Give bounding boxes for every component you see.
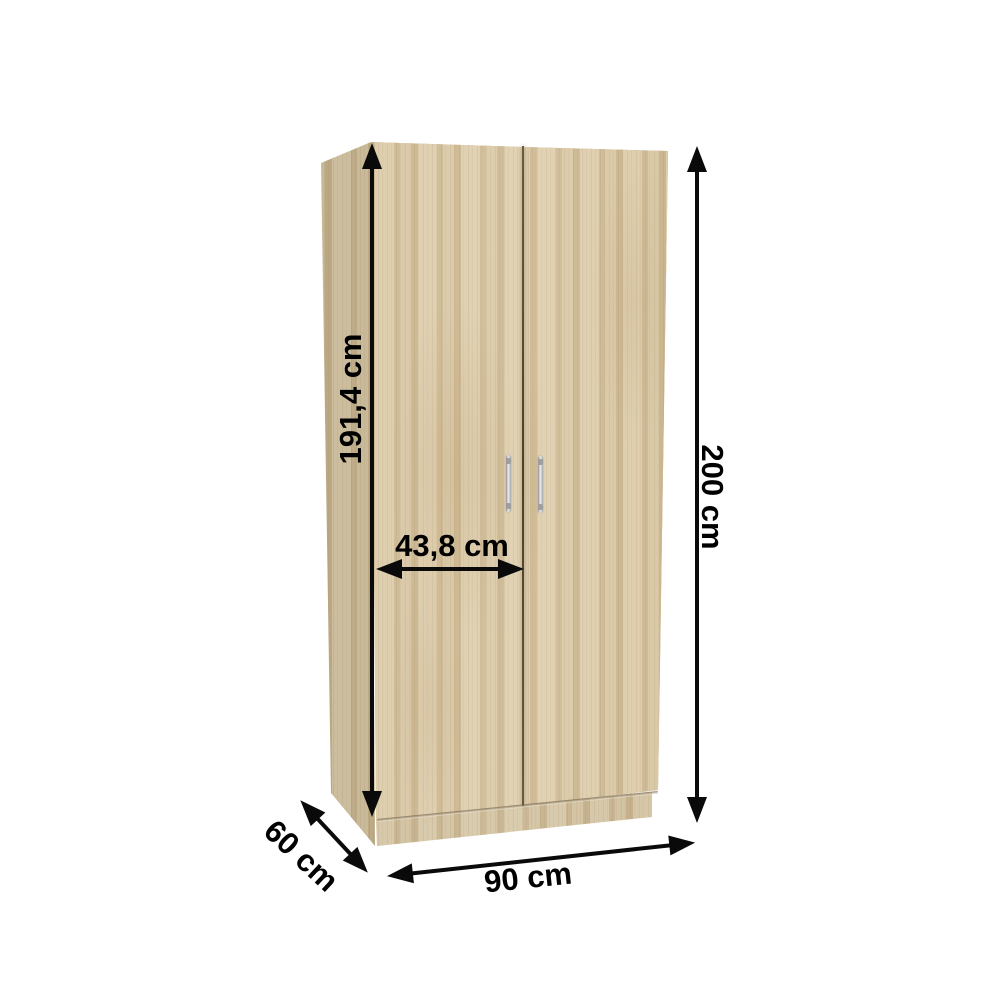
arrow-head-icon [362,143,382,169]
arrow-head-icon [687,797,707,823]
arrow-head-icon [668,833,696,856]
door-gap-line [522,146,525,806]
door-width-label: 43,8 cm [395,528,509,564]
arrow-head-icon [386,863,414,886]
total-height-label: 200 cm [694,444,730,549]
arrow-head-icon [687,146,707,172]
arrow-shaft [370,166,374,794]
arrow-shaft [399,567,501,571]
wardrobe-left-door [0,0,1000,1000]
left-door-handle [506,455,511,512]
arrow-head-icon [362,791,382,817]
inner-height-label: 191,4 cm [333,334,369,465]
right-door-handle [538,456,543,513]
width-label: 90 cm [482,856,573,901]
wardrobe-dimension-diagram: 191,4 cm 43,8 cm 200 cm 60 cm 90 cm [0,0,1000,1000]
depth-label: 60 cm [257,813,346,899]
